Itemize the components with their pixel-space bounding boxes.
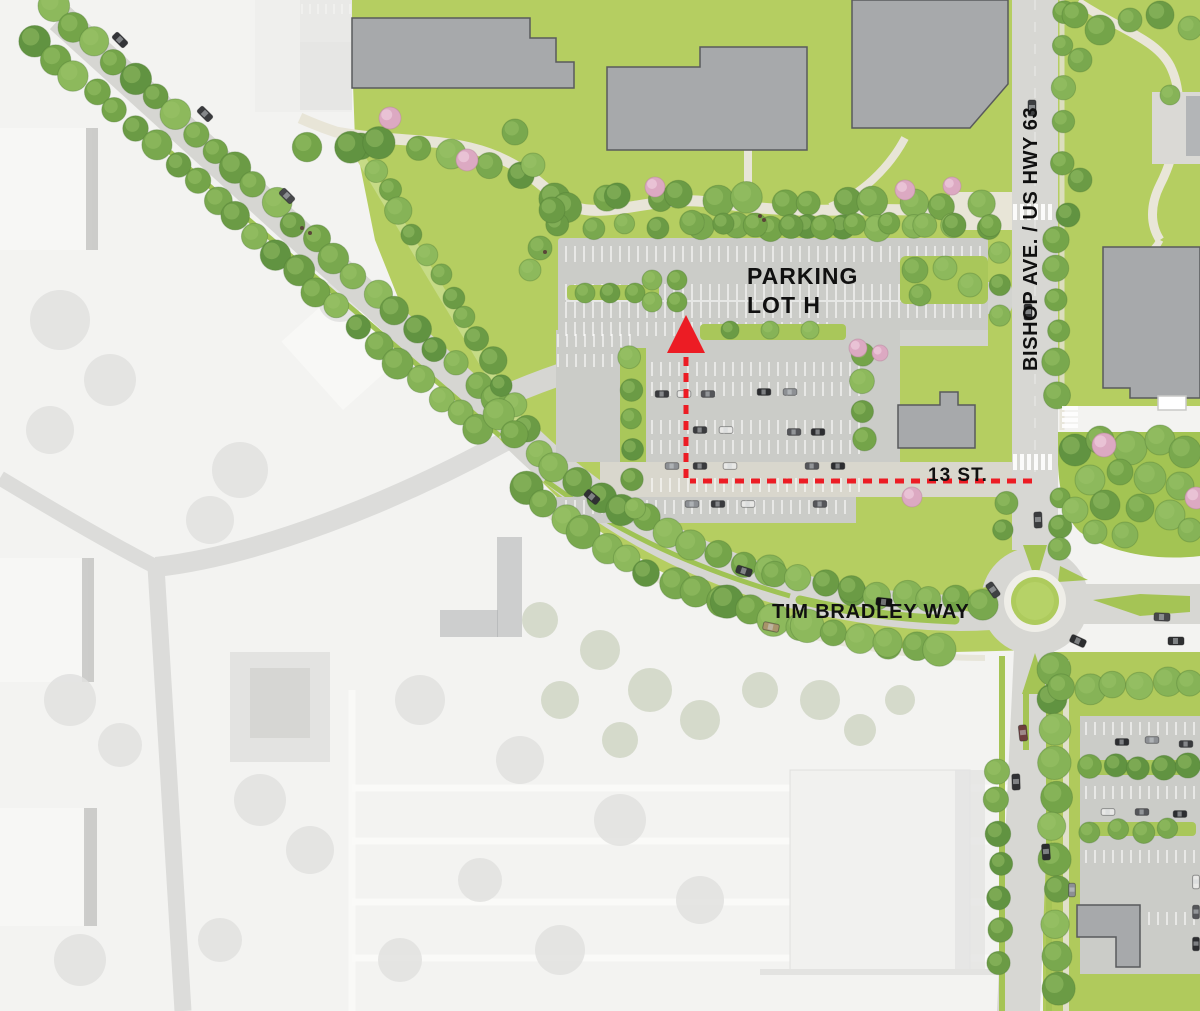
- parking-lot-h-label-line2: LOT H: [747, 291, 858, 320]
- parking-lot-h-label-line1: PARKING: [747, 262, 858, 291]
- parking-lot-h-label: PARKING LOT H: [747, 262, 858, 320]
- thirteenth-street-label: 13 ST.: [928, 465, 988, 487]
- roundabout: [1004, 570, 1066, 632]
- tim-bradley-way-label: TIM BRADLEY WAY: [772, 601, 970, 624]
- building-east: [1103, 247, 1200, 398]
- building-north-east: [852, 0, 1008, 128]
- site-plan-map: PARKING LOT H BISHOP AVE. / US HWY 63 13…: [0, 0, 1200, 1011]
- bishop-ave-hwy-label: BISHOP AVE. / US HWY 63: [1020, 107, 1043, 371]
